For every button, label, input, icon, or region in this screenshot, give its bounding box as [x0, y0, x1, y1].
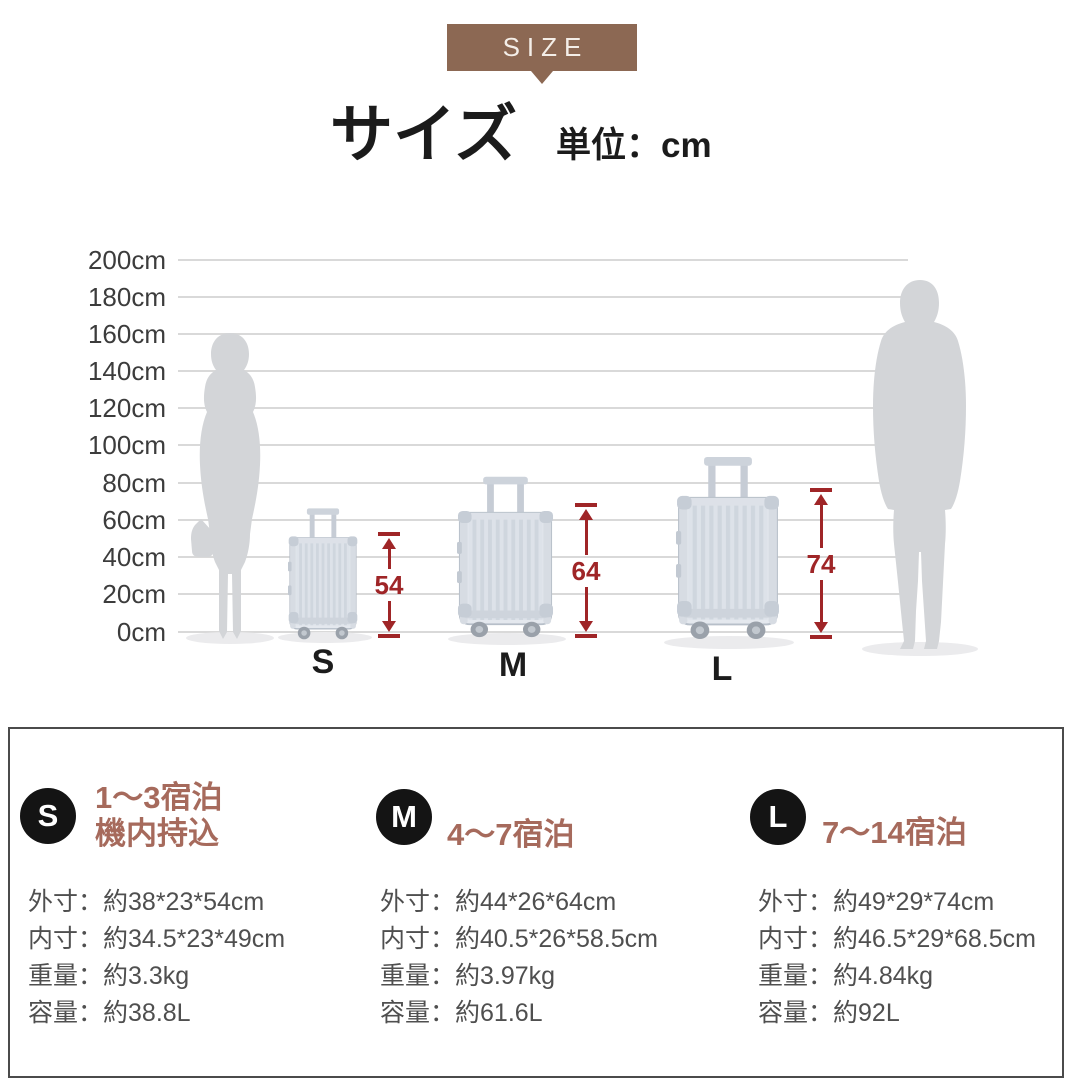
- spec-row-inner-l: 内寸：約46.5*29*68.5cm: [758, 925, 1036, 953]
- spec-row-inner-s: 内寸：約34.5*23*49cm: [28, 925, 285, 953]
- arrow-up-icon: [814, 494, 828, 505]
- spec-label: 外寸：: [380, 888, 455, 916]
- suitcase-l-graphic: [676, 455, 780, 640]
- measure-arrow-l: 74: [809, 488, 833, 639]
- size-label-s: S: [283, 645, 363, 679]
- axis-tick: 200cm: [40, 245, 166, 275]
- spec-label: 外寸：: [758, 888, 833, 916]
- woman-silhouette: [188, 333, 272, 640]
- spec-value: 約3.97kg: [455, 962, 555, 990]
- spec-row-capacity-l: 容量：約92L: [758, 999, 900, 1027]
- size-tab: SIZE: [447, 24, 637, 71]
- spec-label: 重量：: [28, 962, 103, 990]
- gridline-120cm: [178, 407, 908, 409]
- spec-row-weight-s: 重量：約3.3kg: [28, 962, 189, 990]
- spec-value: 約46.5*29*68.5cm: [833, 925, 1036, 953]
- arrow-down-icon: [382, 621, 396, 632]
- axis-tick: 40cm: [40, 542, 166, 572]
- stay-range-s-line1: 1～3宿泊: [95, 780, 222, 816]
- spec-value: 約44*26*64cm: [455, 888, 616, 916]
- size-label-l: L: [682, 652, 762, 686]
- spec-label: 重量：: [758, 962, 833, 990]
- axis-tick: 60cm: [40, 505, 166, 535]
- measure-value-l: 74: [807, 551, 836, 577]
- gridline-200cm: [178, 259, 908, 261]
- measure-line: [388, 601, 391, 621]
- measure-arrow-m: 64: [574, 503, 598, 638]
- size-tab-label: SIZE: [496, 32, 589, 63]
- spec-value: 約49*29*74cm: [833, 888, 994, 916]
- measure-value-m: 64: [572, 558, 601, 584]
- spec-value: 約40.5*26*58.5cm: [455, 925, 658, 953]
- measure-cap-top: [810, 488, 832, 492]
- suitcase-body: [676, 496, 779, 625]
- stay-range-s: 1～3宿泊 機内持込: [95, 780, 222, 852]
- spec-value: 約92L: [833, 999, 900, 1027]
- axis-tick: 140cm: [40, 356, 166, 386]
- spec-row-capacity-m: 容量：約61.6L: [380, 999, 543, 1027]
- measure-cap-bottom: [810, 635, 832, 639]
- measure-line: [820, 580, 823, 623]
- spec-label: 内寸：: [380, 925, 455, 953]
- arrow-up-icon: [382, 538, 396, 549]
- suitcase-s-graphic: [288, 507, 358, 640]
- spec-value: 約61.6L: [455, 999, 543, 1027]
- axis-tick: 180cm: [40, 282, 166, 312]
- spec-row-inner-m: 内寸：約40.5*26*58.5cm: [380, 925, 658, 953]
- spec-label: 容量：: [28, 999, 103, 1027]
- luggage-size-infographic: SIZE サイズ 単位：cm 200cm 180cm 160cm 140cm 1…: [0, 0, 1072, 1080]
- axis-tick: 0cm: [40, 617, 166, 647]
- spec-value: 約3.3kg: [103, 962, 189, 990]
- size-label-m: M: [473, 648, 553, 682]
- gridline-180cm: [178, 296, 908, 298]
- suitcase-body: [288, 536, 357, 628]
- unit-label: 単位：cm: [556, 128, 712, 163]
- page-title: サイズ: [330, 104, 517, 167]
- arrow-down-icon: [814, 622, 828, 633]
- spec-label: 内寸：: [28, 925, 103, 953]
- spec-row-outer-s: 外寸：約38*23*54cm: [28, 888, 264, 916]
- axis-tick: 120cm: [40, 393, 166, 423]
- arrow-up-icon: [579, 509, 593, 520]
- measure-line: [585, 520, 588, 555]
- size-badge-l: L: [750, 789, 806, 845]
- spec-value: 約4.84kg: [833, 962, 933, 990]
- suitcase-handle: [307, 508, 339, 540]
- measure-arrow-s: 54: [377, 532, 401, 638]
- spec-row-capacity-s: 容量：約38.8L: [28, 999, 191, 1027]
- spec-value: 約38.8L: [103, 999, 191, 1027]
- spec-value: 約34.5*23*49cm: [103, 925, 285, 953]
- measure-cap-bottom: [575, 634, 597, 638]
- measure-line: [388, 549, 391, 569]
- gridline-160cm: [178, 333, 908, 335]
- suitcase-m-graphic: [457, 475, 554, 638]
- axis-tick: 160cm: [40, 319, 166, 349]
- spec-label: 内寸：: [758, 925, 833, 953]
- size-badge-m: M: [376, 789, 432, 845]
- suitcase-handle: [483, 477, 528, 516]
- measure-cap-top: [378, 532, 400, 536]
- measure-value-s: 54: [375, 572, 404, 598]
- spec-label: 容量：: [758, 999, 833, 1027]
- suitcase-body: [457, 511, 553, 624]
- spec-label: 容量：: [380, 999, 455, 1027]
- suitcase-handle: [704, 457, 752, 502]
- measure-line: [820, 505, 823, 548]
- spec-label: 重量：: [380, 962, 455, 990]
- axis-tick: 20cm: [40, 579, 166, 609]
- stay-range-s-line2: 機内持込: [95, 816, 222, 852]
- stay-range-m: 4～7宿泊: [447, 817, 574, 853]
- spec-label: 外寸：: [28, 888, 103, 916]
- spec-row-outer-m: 外寸：約44*26*64cm: [380, 888, 616, 916]
- size-badge-s: S: [20, 788, 76, 844]
- axis-tick: 80cm: [40, 468, 166, 498]
- measure-line: [585, 587, 588, 622]
- arrow-down-icon: [579, 621, 593, 632]
- measure-cap-top: [575, 503, 597, 507]
- stay-range-l: 7～14宿泊: [822, 815, 967, 851]
- spec-value: 約38*23*54cm: [103, 888, 264, 916]
- spec-row-weight-m: 重量：約3.97kg: [380, 962, 555, 990]
- axis-tick: 100cm: [40, 430, 166, 460]
- gridline-100cm: [178, 444, 908, 446]
- man-silhouette: [860, 280, 980, 652]
- size-tab-pointer-icon: [531, 71, 553, 84]
- spec-row-weight-l: 重量：約4.84kg: [758, 962, 933, 990]
- spec-row-outer-l: 外寸：約49*29*74cm: [758, 888, 994, 916]
- gridline-140cm: [178, 370, 908, 372]
- measure-cap-bottom: [378, 634, 400, 638]
